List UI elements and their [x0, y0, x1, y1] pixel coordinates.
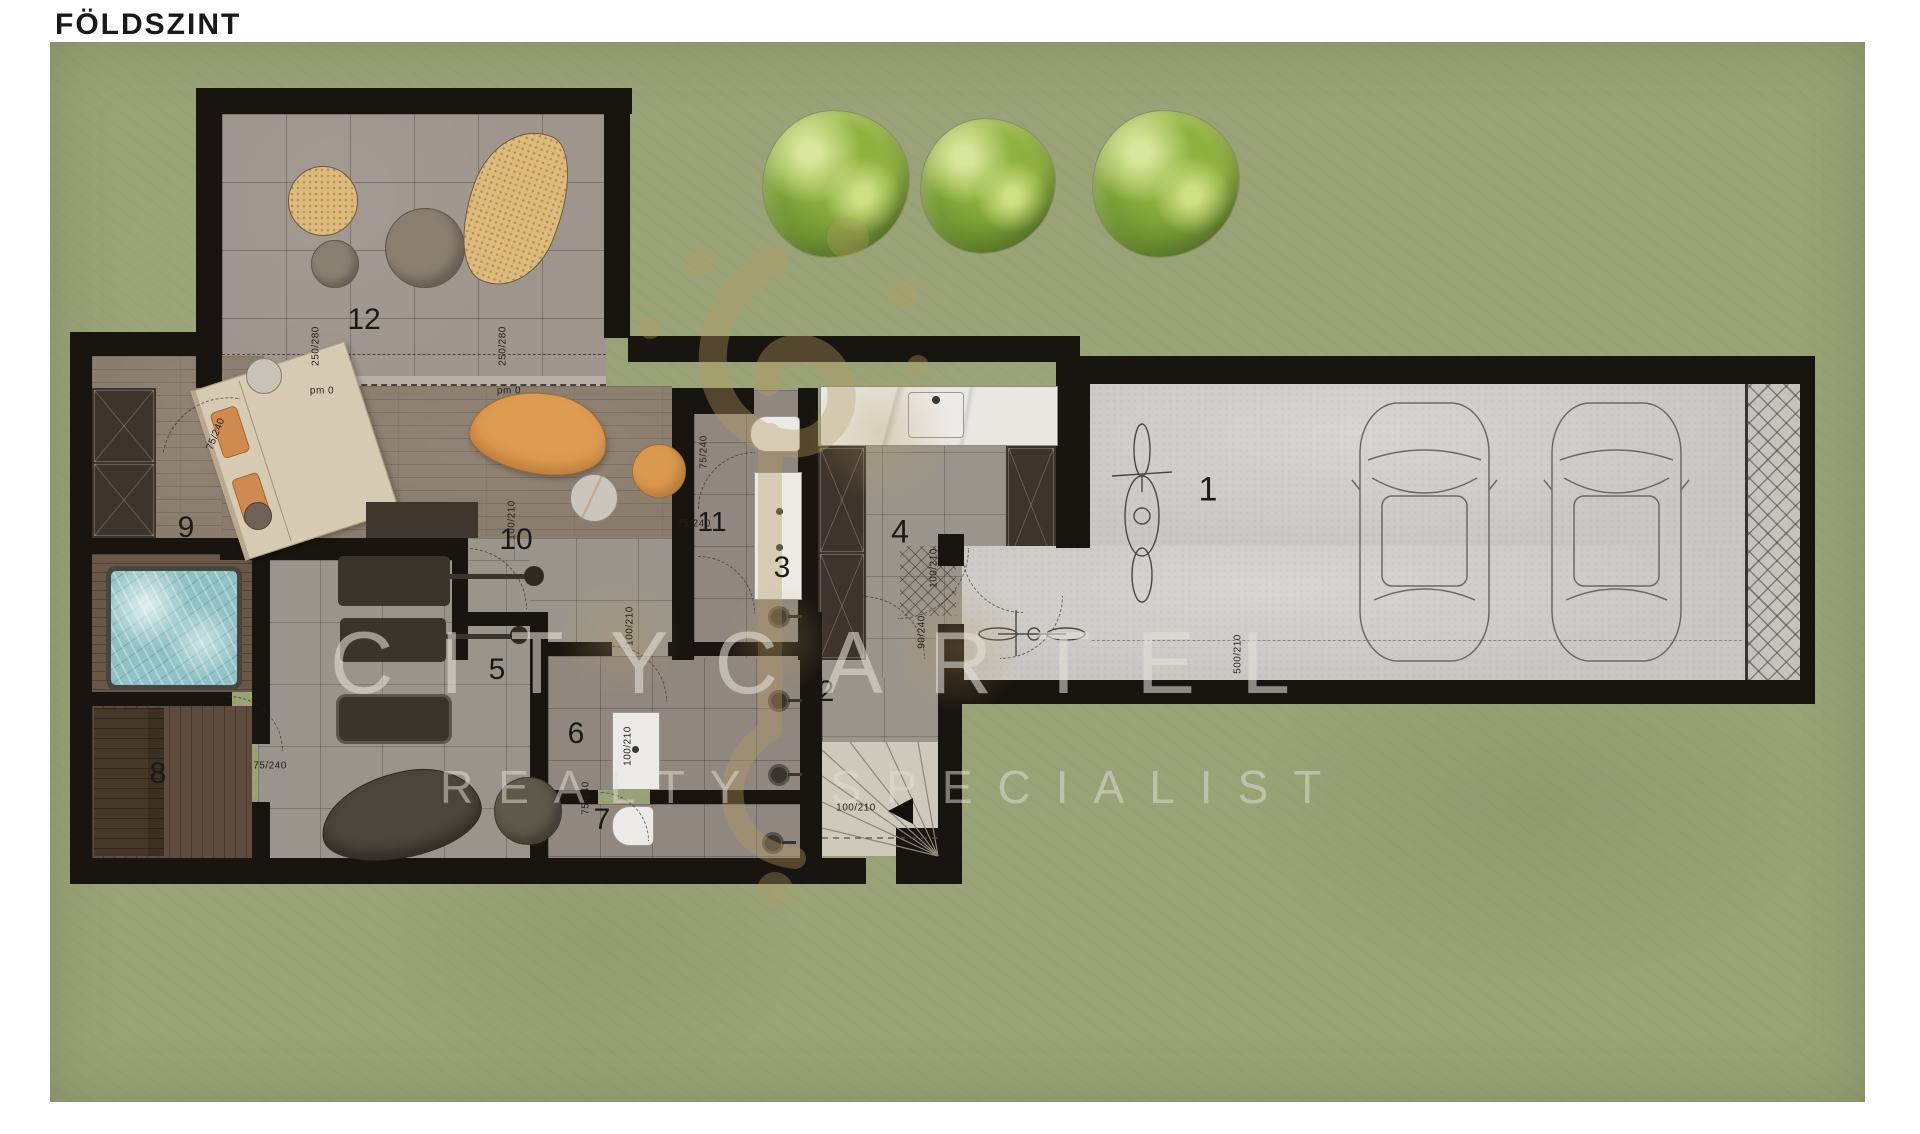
xcell	[1008, 448, 1054, 562]
watermark-tagline: REALTY SPECIALIST	[440, 760, 1346, 814]
circle	[639, 317, 661, 339]
wall	[1056, 362, 1090, 548]
wall	[92, 692, 232, 706]
room-label-12: 12	[347, 303, 380, 337]
nightstand	[246, 358, 282, 394]
line	[1544, 480, 1552, 490]
wall	[70, 332, 92, 882]
wall	[70, 332, 222, 356]
veh	[1352, 403, 1497, 661]
xcell	[94, 390, 154, 462]
circle	[757, 872, 793, 908]
wall	[196, 88, 632, 114]
dimension-label: 75/240	[677, 519, 711, 530]
wall	[252, 802, 270, 860]
xcell	[94, 464, 154, 536]
hot-tub-water	[106, 566, 242, 690]
veh	[1544, 403, 1689, 661]
rect	[1360, 403, 1489, 661]
circle	[827, 217, 869, 259]
weight-plate	[524, 566, 544, 586]
dimension-label: 250/280	[311, 326, 322, 366]
rect	[1382, 496, 1467, 586]
motorcycle-icon	[1106, 420, 1178, 605]
gold-ornament-logo	[550, 170, 1010, 930]
room-label-6: 6	[568, 717, 585, 751]
dimension-label: pm 0	[310, 386, 334, 397]
g	[1112, 424, 1172, 602]
dimension-label: 250/280	[498, 326, 509, 366]
rect	[1574, 496, 1659, 586]
dimension-label: 75/240	[699, 435, 710, 469]
rect	[1552, 403, 1681, 661]
path	[713, 260, 842, 444]
garage-gate	[1745, 384, 1806, 680]
ellipse	[1134, 424, 1150, 476]
car-icon	[1544, 398, 1689, 666]
gym-bench	[338, 556, 450, 606]
car-icon	[1352, 398, 1497, 666]
wardrobe	[92, 388, 156, 538]
round-table	[385, 208, 465, 288]
line	[1681, 480, 1689, 490]
wall	[252, 538, 270, 694]
room-label-4: 4	[891, 514, 909, 551]
circle	[1134, 508, 1150, 524]
circle	[886, 276, 918, 308]
dimension-label: 100/210	[507, 500, 518, 540]
path	[1368, 450, 1481, 460]
dimension-label: pm 0	[497, 386, 521, 397]
circle	[685, 247, 715, 277]
line	[1489, 480, 1497, 490]
wicker-pouf	[288, 166, 358, 236]
path	[1374, 589, 1475, 600]
path	[1372, 478, 1477, 493]
path	[1566, 589, 1667, 600]
watermark-brand: CITYCARTEL	[330, 612, 1336, 714]
line	[1352, 480, 1360, 490]
wall	[1078, 356, 1815, 384]
round-pouf	[311, 240, 359, 288]
page-title: FÖLDSZINT	[55, 8, 241, 42]
desk	[366, 502, 478, 538]
path	[1564, 478, 1669, 493]
room-label-9: 9	[178, 511, 195, 545]
room-label-3: 3	[774, 551, 791, 585]
room-label-1: 1	[1199, 471, 1218, 510]
path	[1560, 450, 1673, 460]
floor-plan-page: FÖLDSZINT	[0, 0, 1920, 1134]
sauna-bench	[94, 708, 148, 856]
circle	[907, 355, 929, 377]
dimension-label: 100/210	[929, 548, 940, 588]
terrace-dash	[222, 354, 606, 355]
wall	[1800, 384, 1815, 680]
nightstand	[244, 502, 272, 530]
room-label-8: 8	[150, 757, 167, 791]
dimension-label: 75/240	[253, 761, 287, 772]
